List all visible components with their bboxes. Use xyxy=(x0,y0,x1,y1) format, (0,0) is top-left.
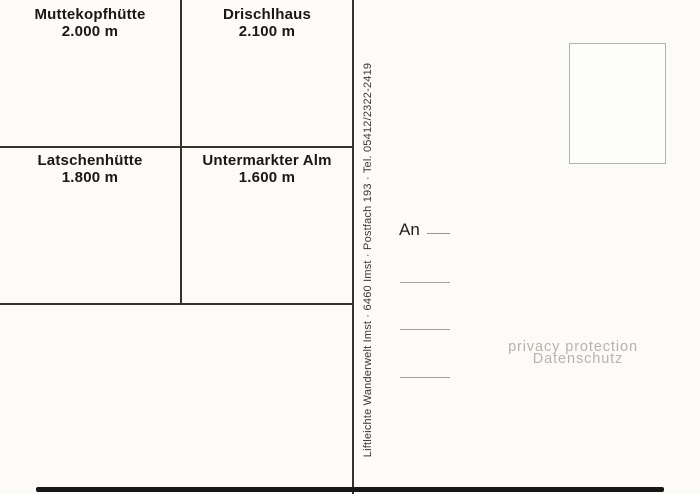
caption-title: Drischlhaus xyxy=(223,6,311,23)
grid-divider-horizontal-bottom xyxy=(0,303,354,305)
address-line xyxy=(400,282,450,283)
caption-cell-latschenhuette: Latschenhütte 1.800 m xyxy=(0,153,180,186)
caption-cell-untermarkter-alm: Untermarkter Alm 1.600 m xyxy=(182,153,352,186)
publisher-imprint: Liftleichte Wanderwelt Imst · 6460 Imst … xyxy=(362,63,374,458)
address-line xyxy=(400,377,450,378)
caption-title: Latschenhütte xyxy=(37,152,142,169)
caption-title: Untermarkter Alm xyxy=(202,152,331,169)
caption-elevation: 2.100 m xyxy=(182,24,352,40)
postcard-back: Muttekopfhütte 2.000 m Drischlhaus 2.100… xyxy=(0,0,700,494)
caption-elevation: 2.000 m xyxy=(0,24,180,40)
address-label-underline xyxy=(427,233,450,234)
grid-divider-vertical-inner xyxy=(180,0,182,305)
caption-cell-drischlhaus: Drischlhaus 2.100 m xyxy=(182,7,352,40)
caption-cell-muttekopfhuette: Muttekopfhütte 2.000 m xyxy=(0,7,180,40)
address-line xyxy=(400,329,450,330)
caption-elevation: 1.800 m xyxy=(0,170,180,186)
address-label: An xyxy=(399,220,420,240)
card-bottom-edge-shadow xyxy=(36,487,664,492)
caption-title: Muttekopfhütte xyxy=(34,6,145,23)
caption-elevation: 1.600 m xyxy=(182,170,352,186)
card-center-divider xyxy=(352,0,354,494)
stamp-box xyxy=(569,43,666,164)
watermark-line-2: Datenschutz xyxy=(533,351,624,367)
grid-divider-horizontal-middle xyxy=(0,146,354,148)
